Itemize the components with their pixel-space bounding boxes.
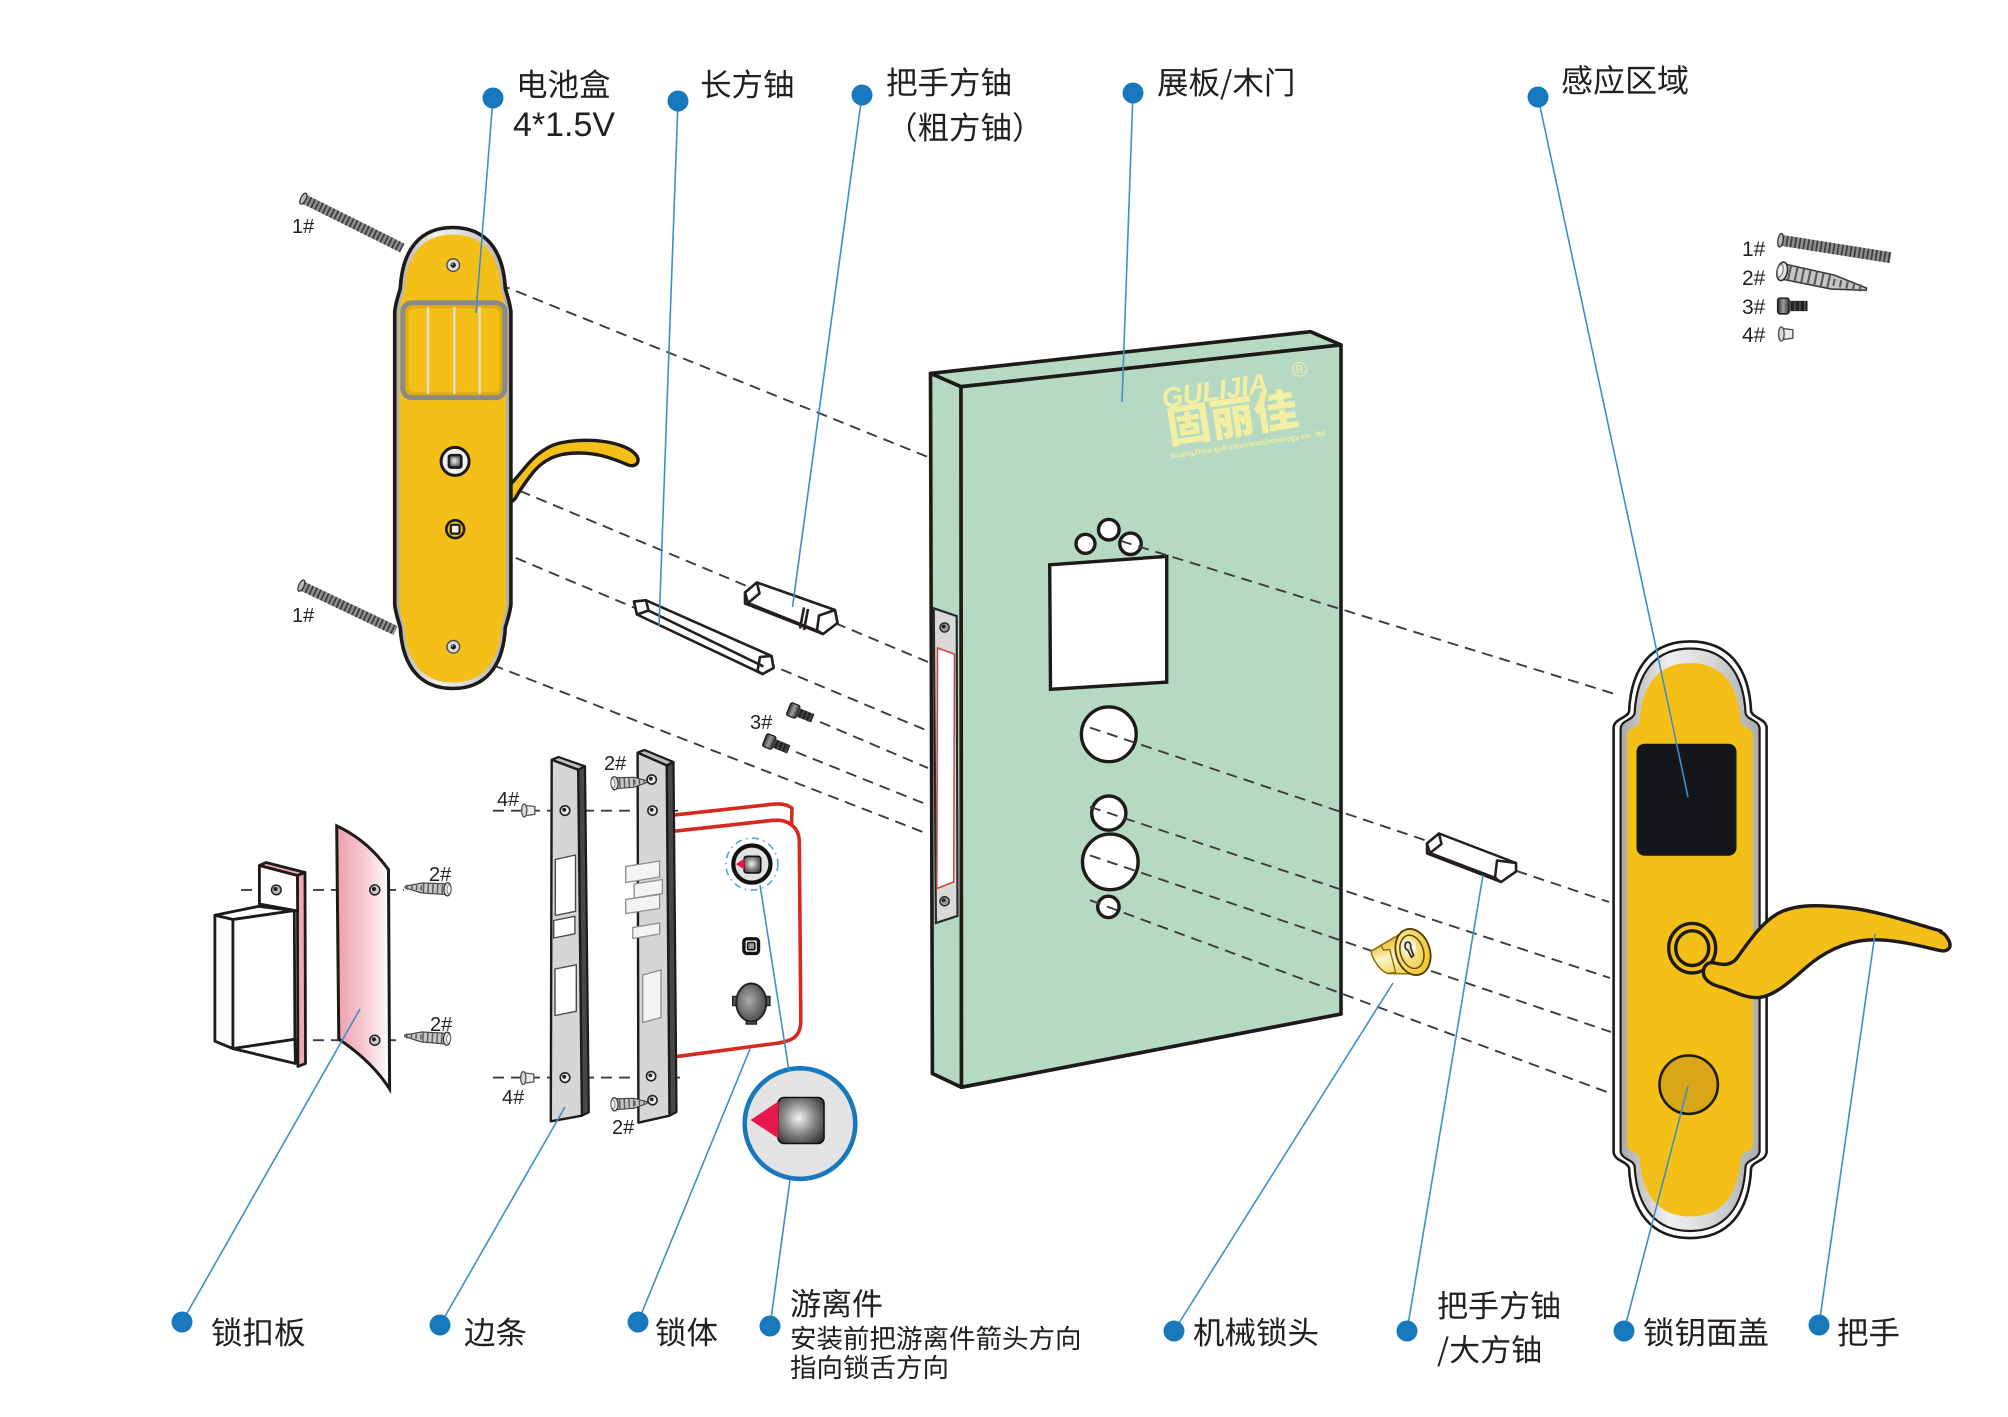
svg-text:3#: 3# xyxy=(750,712,773,734)
svg-text:1#: 1# xyxy=(292,605,315,627)
svg-text:2#: 2# xyxy=(612,1117,635,1139)
svg-text:2#: 2# xyxy=(430,1014,453,1036)
svg-text:1#: 1# xyxy=(292,216,315,238)
svg-text:3#: 3# xyxy=(1742,296,1766,319)
svg-text:1#: 1# xyxy=(1742,238,1766,261)
svg-text:2#: 2# xyxy=(604,753,627,775)
svg-text:2#: 2# xyxy=(1742,267,1766,290)
svg-text:4#: 4# xyxy=(1742,324,1766,347)
svg-text:2#: 2# xyxy=(429,864,452,886)
svg-text:4*1.5V: 4*1.5V xyxy=(513,106,615,144)
svg-text:4#: 4# xyxy=(502,1087,525,1109)
svg-text:4#: 4# xyxy=(497,789,520,811)
